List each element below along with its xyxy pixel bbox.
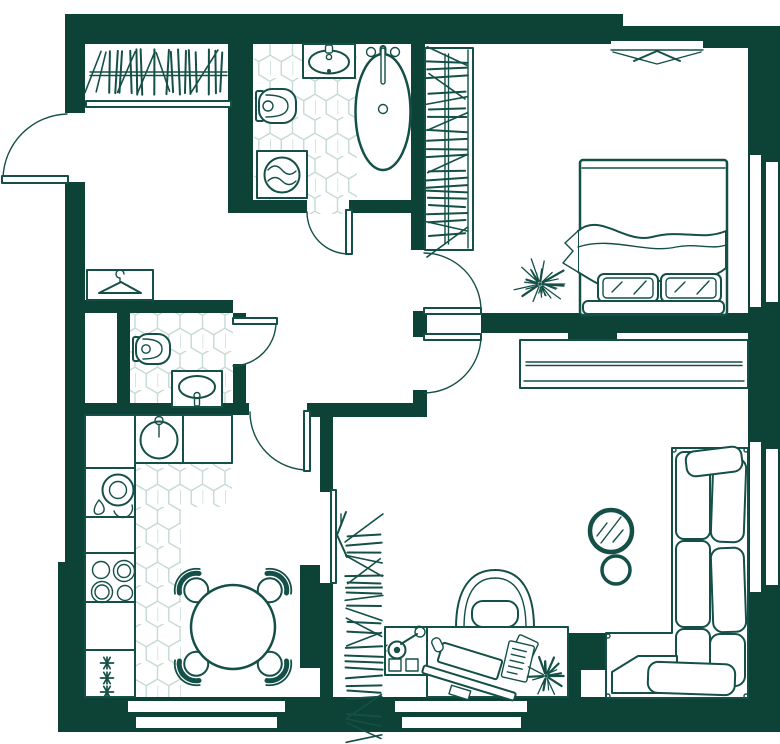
- coat-hanger-box: [87, 270, 153, 300]
- pillow: [661, 274, 721, 302]
- bedroom-wardrobe: [425, 47, 473, 257]
- wall-right: [748, 26, 780, 732]
- dining-table: [191, 585, 275, 669]
- bed: [563, 160, 727, 315]
- entry-closet: [85, 49, 231, 107]
- wall-top-a: [65, 14, 623, 44]
- kitchen-counter: [85, 602, 135, 650]
- entry-door: [2, 114, 68, 183]
- kitchen-counter: [85, 415, 135, 468]
- bedroom-plant: [514, 259, 565, 302]
- pillow: [598, 274, 658, 302]
- bedroom: [514, 160, 727, 315]
- wall-mirror: [590, 510, 632, 552]
- pouf: [602, 556, 630, 584]
- bathroom-sink: [303, 44, 355, 78]
- window-top-bedroom: [611, 41, 703, 64]
- wall-left-lower: [58, 562, 85, 732]
- wall-wc-right-lower: [233, 364, 246, 408]
- floor-plan-page: [0, 0, 780, 744]
- headboard: [583, 301, 724, 314]
- wall-hall-living: [307, 403, 425, 417]
- wall-left-upper: [65, 14, 85, 113]
- bathroom-door: [307, 210, 352, 254]
- wall-wc-top: [65, 300, 233, 313]
- wall-kitchen-pier: [300, 565, 320, 668]
- duct-shaft-notch: [581, 670, 607, 697]
- wc-sink: [172, 371, 222, 407]
- bathroom-door-tile: [307, 200, 349, 214]
- living-door: [424, 334, 481, 393]
- sofa-pillow: [685, 446, 744, 478]
- wall-bath-bedroom-divider: [411, 44, 425, 250]
- wall-kitchen-living-lower: [320, 583, 333, 697]
- bathtub: [356, 46, 411, 170]
- sofa-bottom-cushion: [647, 662, 735, 696]
- wall-hall-stub-lower: [413, 390, 427, 417]
- sofa-seat-cushion: [676, 541, 710, 627]
- wc-door: [233, 318, 277, 366]
- wall-wc-left-pillar: [117, 313, 130, 408]
- blanket-overhang: [563, 231, 578, 272]
- wc-toilet: [133, 334, 170, 364]
- freezer-asterisks-icon: [101, 657, 114, 699]
- wall-kitchen-living-upper: [320, 415, 333, 492]
- kitchen-door: [250, 411, 310, 471]
- kitchen: [85, 415, 291, 699]
- kitchen-counter: [183, 415, 232, 463]
- living-room: [590, 446, 748, 698]
- desk-area: [385, 570, 568, 701]
- bathroom-toilet: [256, 89, 296, 123]
- floor-plan-drawing: [0, 0, 780, 744]
- bedroom-door: [424, 253, 481, 314]
- lamp-cabinet: [385, 626, 427, 675]
- kitchen-counter: [85, 517, 135, 553]
- sofa-back-cushion: [711, 547, 747, 632]
- wall-closet-bath-divider: [228, 44, 253, 213]
- wall-left-mid: [65, 182, 85, 562]
- washing-machine: [257, 151, 307, 198]
- folding-door: [331, 490, 347, 583]
- desk-chair: [456, 570, 534, 628]
- wall-bath-bottom-left: [232, 200, 307, 213]
- dining-table-set: [175, 569, 292, 686]
